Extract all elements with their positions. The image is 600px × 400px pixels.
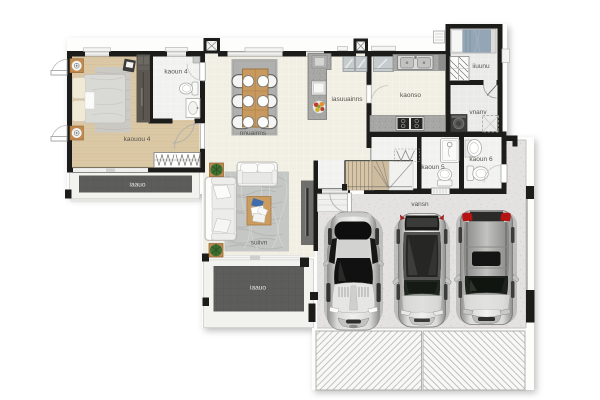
svg-text:kaonso: kaonso xyxy=(400,92,421,99)
svg-text:iasuuainns: iasuuainns xyxy=(331,96,363,103)
svg-text:kaoun 4: kaoun 4 xyxy=(164,69,188,76)
svg-text:iiuunu: iiuunu xyxy=(472,63,490,70)
svg-text:kaoun 5: kaoun 5 xyxy=(421,164,445,171)
svg-text:vansn: vansn xyxy=(411,201,429,208)
svg-text:nnuainns: nnuainns xyxy=(240,130,267,137)
svg-text:suiivn: suiivn xyxy=(251,240,268,247)
svg-text:iaauo: iaauo xyxy=(250,285,266,292)
svg-text:kaoun 6: kaoun 6 xyxy=(469,156,493,163)
svg-text:kaouou 4: kaouou 4 xyxy=(124,136,151,143)
svg-text:vnanv: vnanv xyxy=(469,109,487,116)
svg-text:iaauo: iaauo xyxy=(130,182,146,189)
